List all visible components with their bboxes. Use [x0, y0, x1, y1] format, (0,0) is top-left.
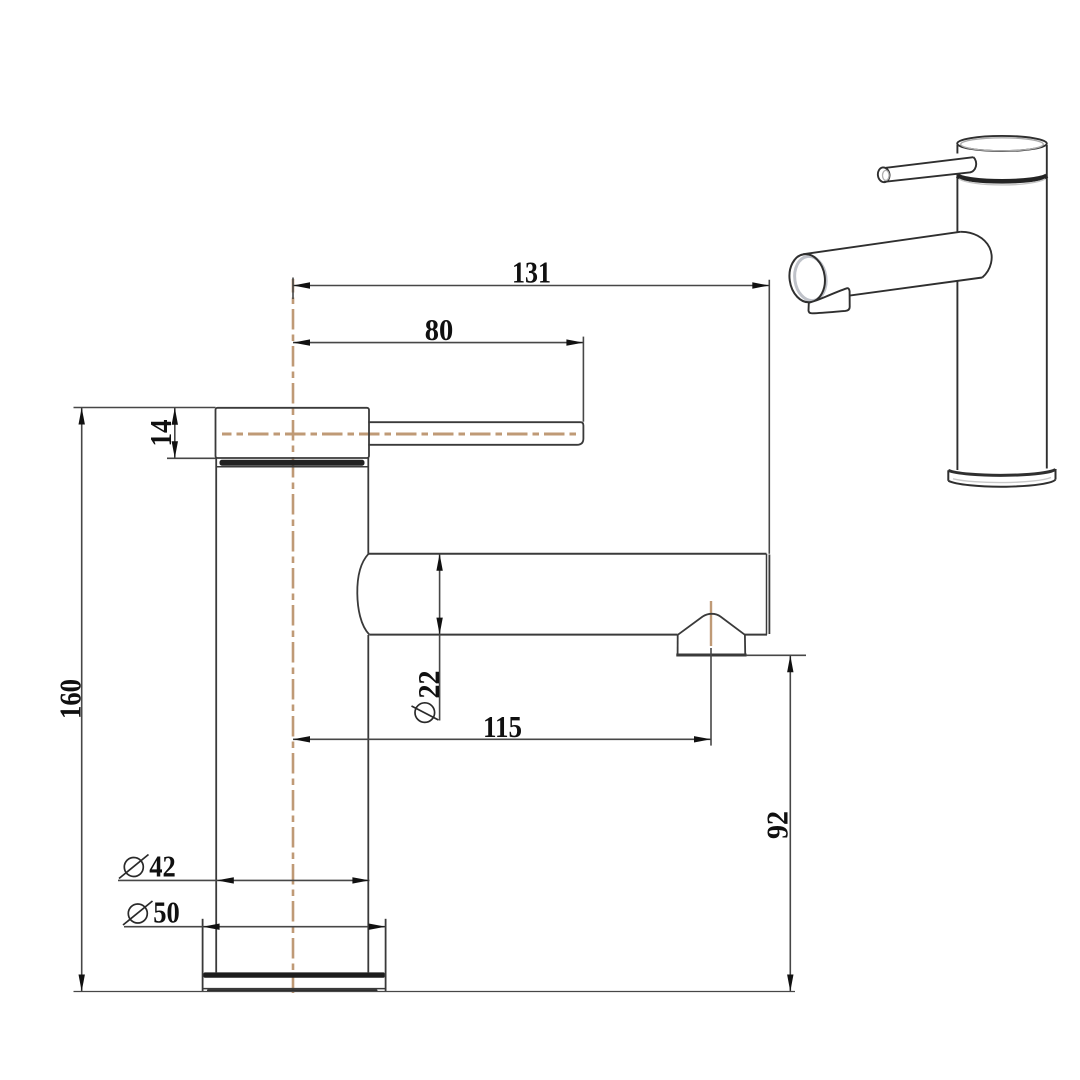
svg-text:92: 92 [759, 811, 794, 839]
svg-text:50: 50 [153, 895, 180, 930]
svg-text:115: 115 [483, 709, 522, 744]
svg-text:80: 80 [425, 312, 454, 347]
svg-text:160: 160 [53, 679, 88, 719]
svg-text:14: 14 [143, 420, 178, 447]
svg-text:22: 22 [411, 671, 446, 699]
svg-text:131: 131 [512, 255, 551, 290]
svg-text:42: 42 [149, 849, 176, 884]
